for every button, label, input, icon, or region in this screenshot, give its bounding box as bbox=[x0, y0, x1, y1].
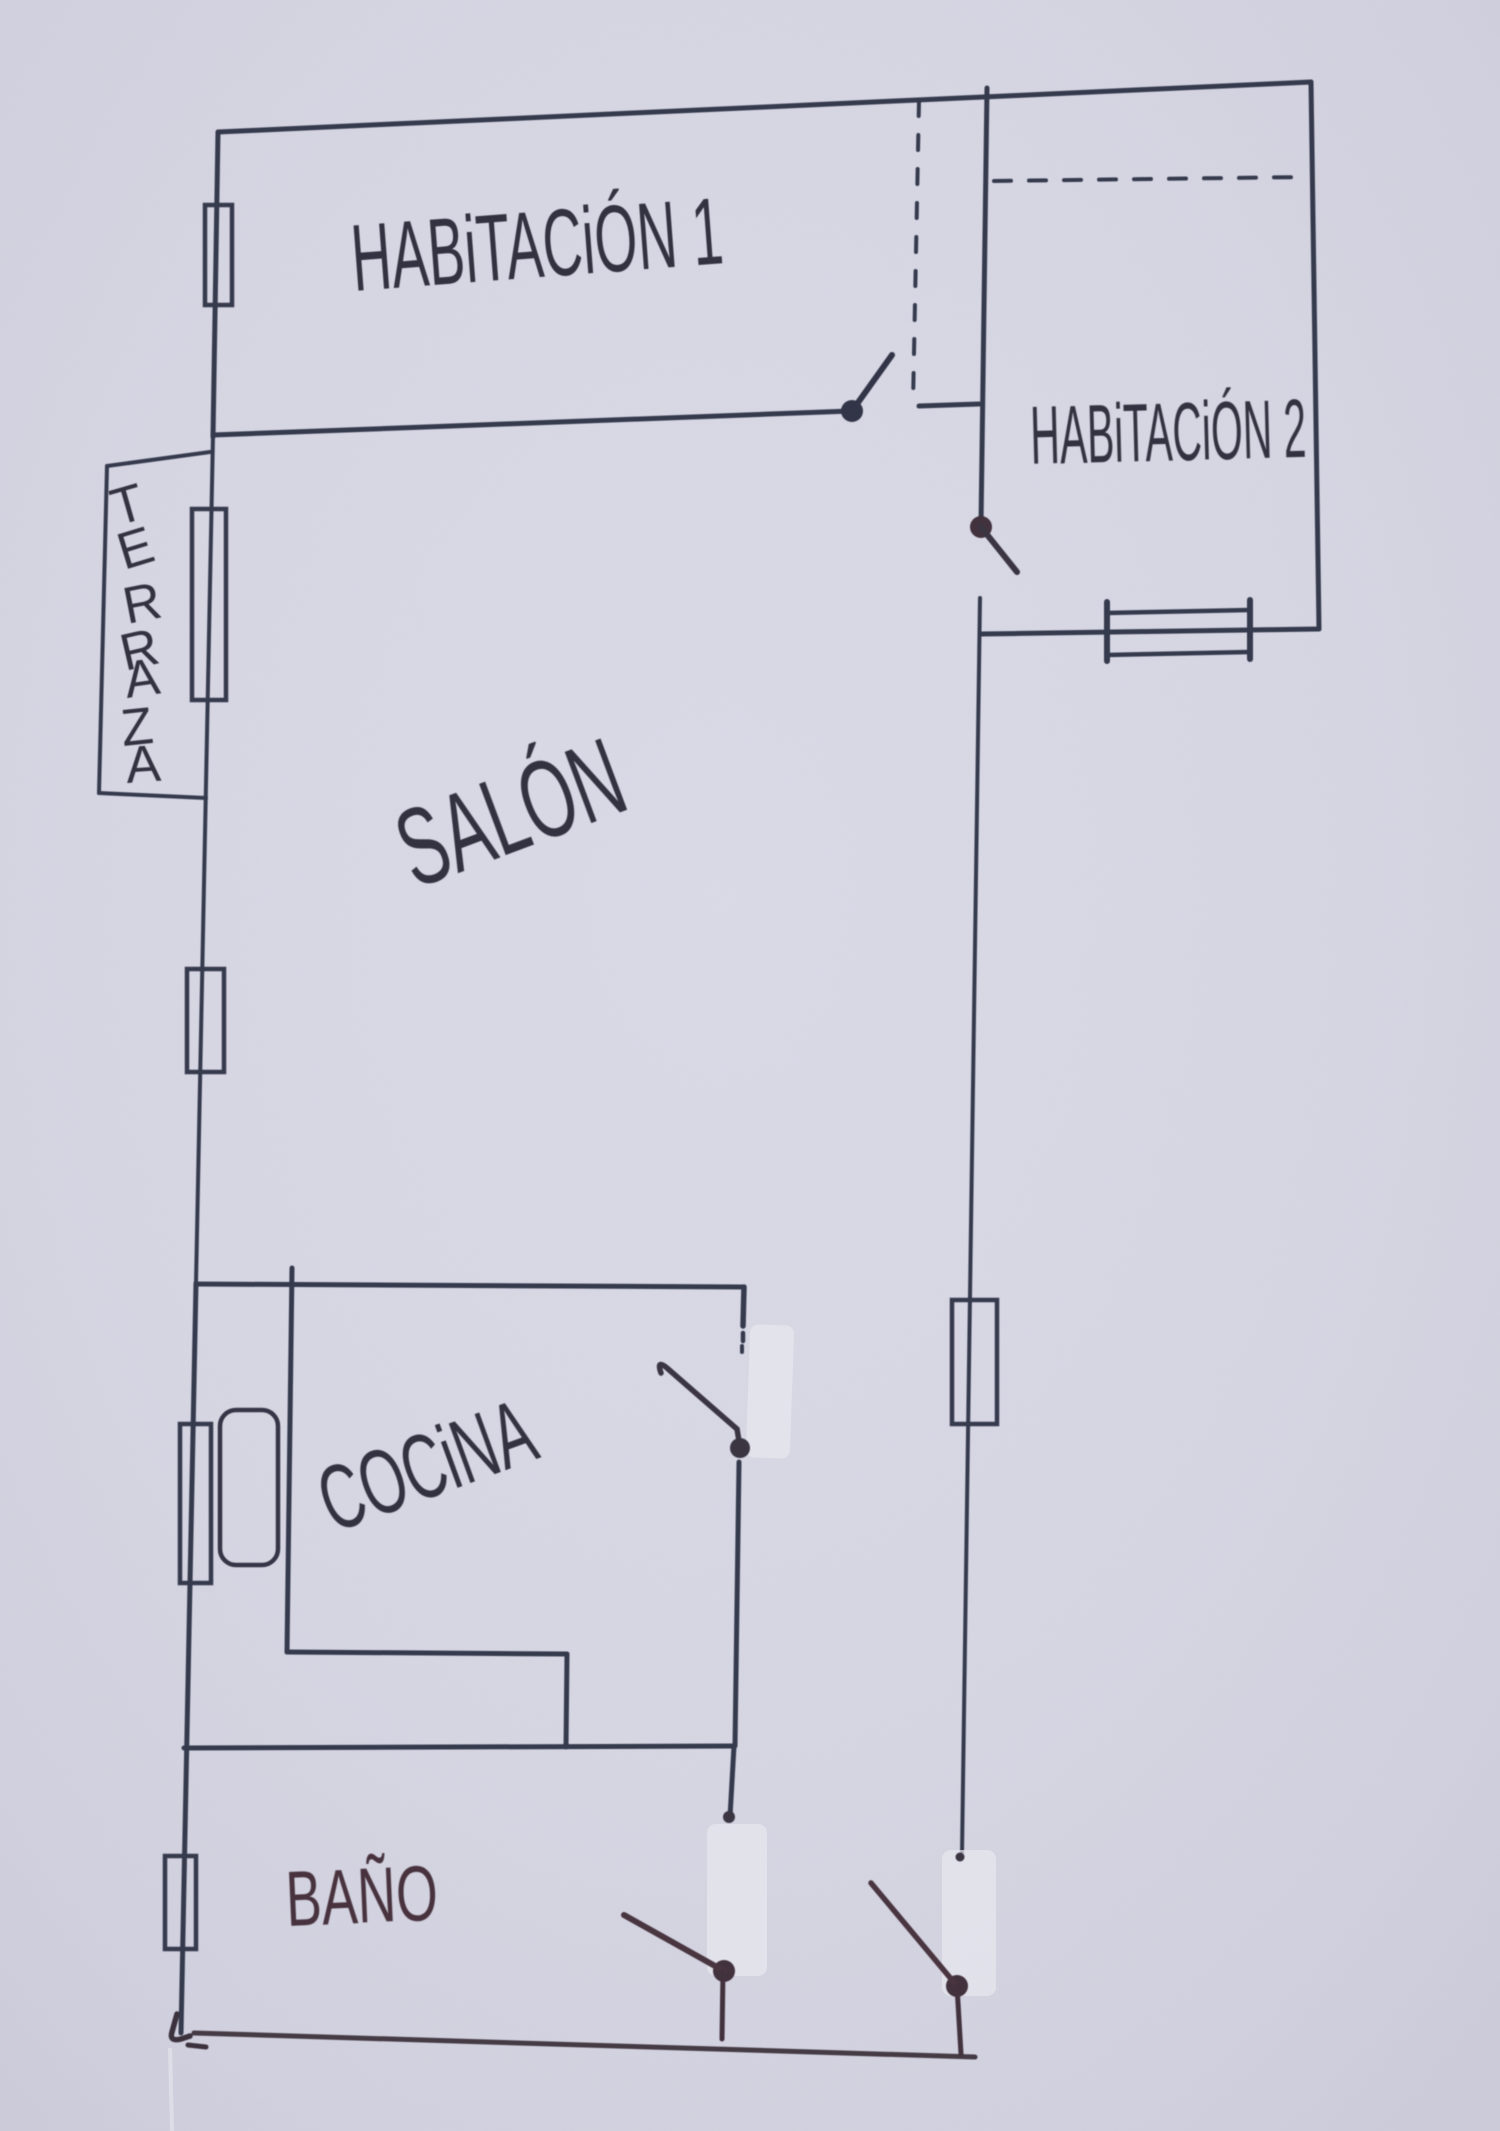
svg-text:A: A bbox=[124, 735, 163, 795]
svg-text:HABiTACiÓN 2: HABiTACiÓN 2 bbox=[1029, 382, 1307, 482]
svg-text:BAÑO: BAÑO bbox=[284, 1848, 440, 1943]
